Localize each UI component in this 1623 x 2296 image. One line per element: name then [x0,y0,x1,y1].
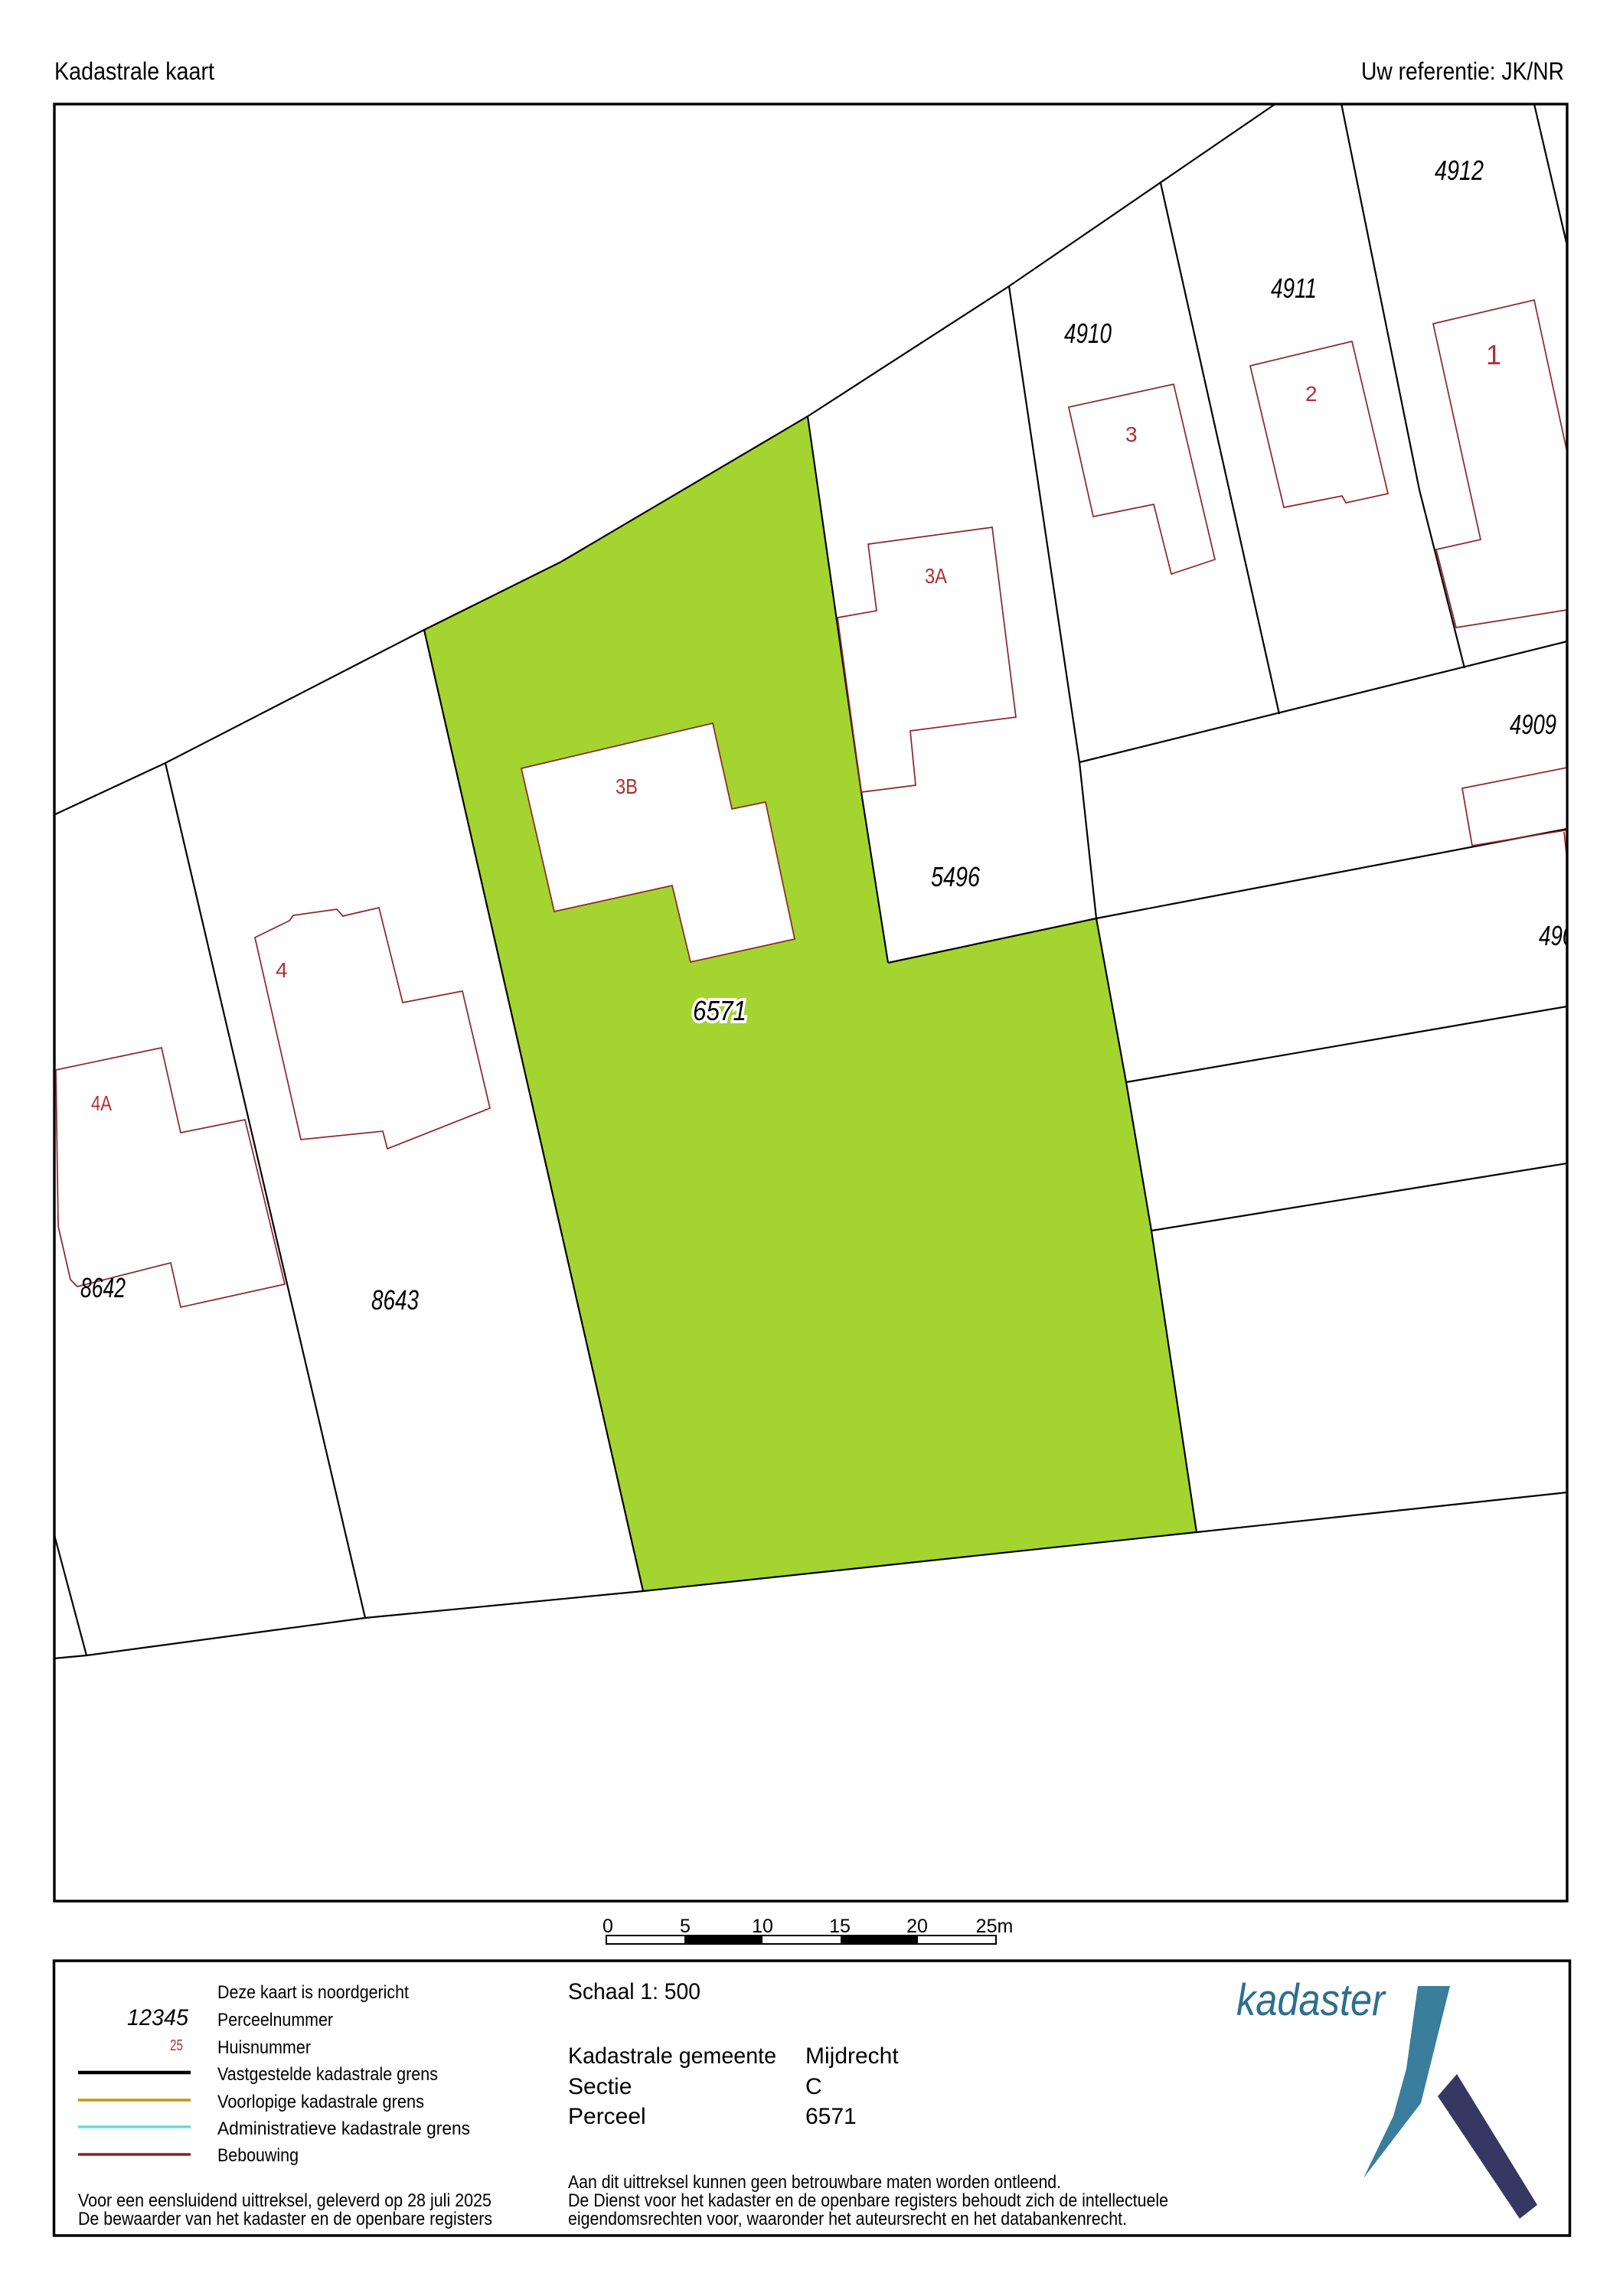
svg-text:4: 4 [276,958,288,982]
svg-text:8642: 8642 [80,1272,126,1303]
svg-text:4910: 4910 [1064,318,1112,349]
svg-text:25m: 25m [976,1916,1014,1937]
svg-text:3A: 3A [925,564,947,588]
svg-text:Perceel: Perceel [568,2104,646,2129]
svg-text:0: 0 [603,1916,613,1937]
svg-text:4911: 4911 [1271,272,1317,304]
svg-text:Mijdrecht: Mijdrecht [805,2043,899,2069]
svg-text:C: C [805,2074,822,2099]
svg-text:Bebouwing: Bebouwing [217,2145,299,2166]
svg-text:12345: 12345 [127,2005,188,2030]
svg-text:Huisnummer: Huisnummer [217,2037,311,2058]
svg-text:10: 10 [752,1916,773,1937]
svg-text:8643: 8643 [371,1284,419,1316]
svg-text:2: 2 [1305,382,1318,406]
svg-text:3B: 3B [616,775,638,798]
svg-text:De bewaarder van het kadaster: De bewaarder van het kadaster en de open… [78,2209,492,2229]
svg-text:4908: 4908 [1539,920,1586,951]
svg-text:Administratieve kadastrale gre: Administratieve kadastrale grens [217,2118,470,2139]
svg-text:1: 1 [1486,339,1501,370]
svg-text:Deze kaart is noordgericht: Deze kaart is noordgericht [217,1982,409,2003]
svg-text:5496: 5496 [931,861,981,892]
svg-text:Sectie: Sectie [568,2074,632,2099]
svg-text:20: 20 [906,1916,928,1937]
svg-text:4A: 4A [91,1091,112,1115]
svg-text:4912: 4912 [1435,155,1484,186]
svg-text:Kadastrale gemeente: Kadastrale gemeente [568,2043,776,2069]
svg-text:Voor een eensluidend uittrekse: Voor een eensluidend uittreksel, gelever… [78,2190,491,2211]
svg-text:15: 15 [829,1916,851,1937]
svg-text:5: 5 [680,1916,691,1937]
svg-text:Vastgestelde kadastrale grens: Vastgestelde kadastrale grens [217,2064,438,2085]
svg-text:Perceelnummer: Perceelnummer [217,2010,333,2030]
svg-text:De Dienst voor het kadaster en: De Dienst voor het kadaster en de openba… [568,2190,1168,2211]
svg-text:4909: 4909 [1510,709,1556,740]
svg-text:6571: 6571 [805,2104,857,2129]
svg-text:Voorlopige kadastrale grens: Voorlopige kadastrale grens [217,2092,424,2112]
svg-text:Kadastrale kaart: Kadastrale kaart [54,57,214,85]
svg-text:eigendomsrechten voor, waarond: eigendomsrechten voor, waaronder het aut… [568,2209,1127,2229]
svg-text:Aan dit uittreksel kunnen geen: Aan dit uittreksel kunnen geen betrouwba… [568,2172,1061,2193]
svg-text:25: 25 [170,2037,183,2054]
svg-text:3: 3 [1125,422,1138,446]
svg-text:6571: 6571 [693,995,746,1026]
svg-text:Schaal 1: 500: Schaal 1: 500 [568,1979,700,2004]
svg-text:Uw referentie: JK/NR: Uw referentie: JK/NR [1361,57,1564,85]
svg-text:kadaster: kadaster [1236,1975,1386,2025]
